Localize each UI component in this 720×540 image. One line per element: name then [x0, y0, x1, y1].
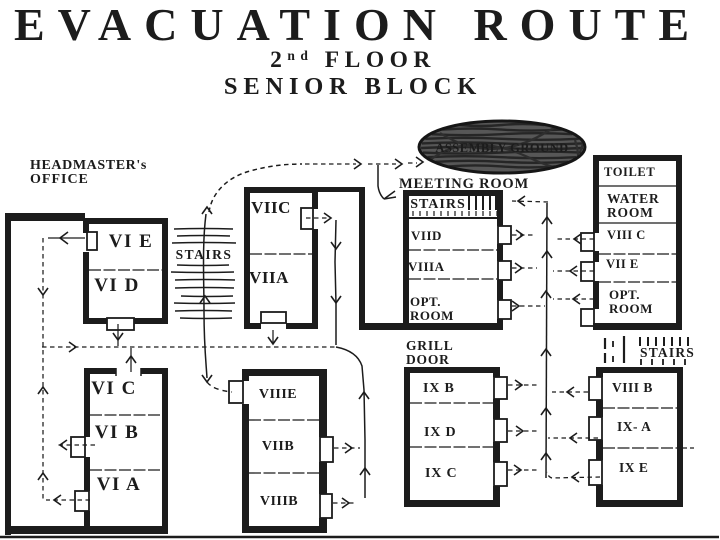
svg-text:HEADMASTER's: HEADMASTER's	[30, 158, 147, 173]
svg-text:WATER: WATER	[607, 191, 660, 206]
svg-text:IX E: IX E	[619, 460, 648, 475]
svg-text:ROOM: ROOM	[609, 301, 653, 316]
svg-text:OFFICE: OFFICE	[30, 172, 89, 187]
svg-text:VIIC: VIIC	[251, 198, 291, 217]
svg-text:VI B: VI B	[95, 422, 140, 443]
svg-text:ROOM: ROOM	[607, 205, 654, 220]
svg-text:VI D: VI D	[94, 275, 140, 296]
svg-text:MEETING ROOM: MEETING ROOM	[399, 176, 529, 192]
svg-text:IX B: IX B	[423, 381, 455, 396]
svg-text:VIIA: VIIA	[249, 268, 289, 287]
svg-text:VIIIE: VIIIE	[259, 387, 297, 402]
svg-text:VIIB: VIIB	[262, 439, 294, 454]
svg-text:EVACUATION ROUTE: EVACUATION ROUTE	[14, 0, 702, 50]
svg-text:TOILET: TOILET	[604, 165, 655, 179]
svg-text:IX C: IX C	[425, 466, 457, 481]
svg-text:VI C: VI C	[91, 378, 137, 399]
svg-text:ROOM: ROOM	[410, 308, 454, 323]
svg-text:VI A: VI A	[97, 474, 142, 495]
svg-text:VIII B: VIII B	[612, 380, 653, 395]
svg-text:STAIRS: STAIRS	[410, 197, 466, 212]
svg-text:VI E: VI E	[109, 231, 154, 252]
svg-text:IX D: IX D	[424, 425, 456, 440]
svg-text:SENIOR BLOCK: SENIOR BLOCK	[224, 73, 482, 100]
svg-text:VIIIB: VIIIB	[260, 494, 298, 509]
svg-text:VIID: VIID	[411, 228, 442, 243]
svg-text:DOOR: DOOR	[406, 352, 450, 367]
svg-text:ASSEMBLY GROUND: ASSEMBLY GROUND	[435, 141, 568, 155]
svg-text:OPT.: OPT.	[410, 294, 441, 309]
svg-text:IX- A: IX- A	[617, 419, 651, 434]
svg-text:STAIRS: STAIRS	[640, 345, 695, 360]
svg-text:VII E: VII E	[606, 257, 639, 271]
svg-text:OPT.: OPT.	[609, 287, 640, 302]
svg-text:GRILL: GRILL	[406, 338, 454, 353]
svg-text:VIII C: VIII C	[607, 228, 646, 242]
svg-text:VIIIA: VIIIA	[408, 259, 445, 274]
